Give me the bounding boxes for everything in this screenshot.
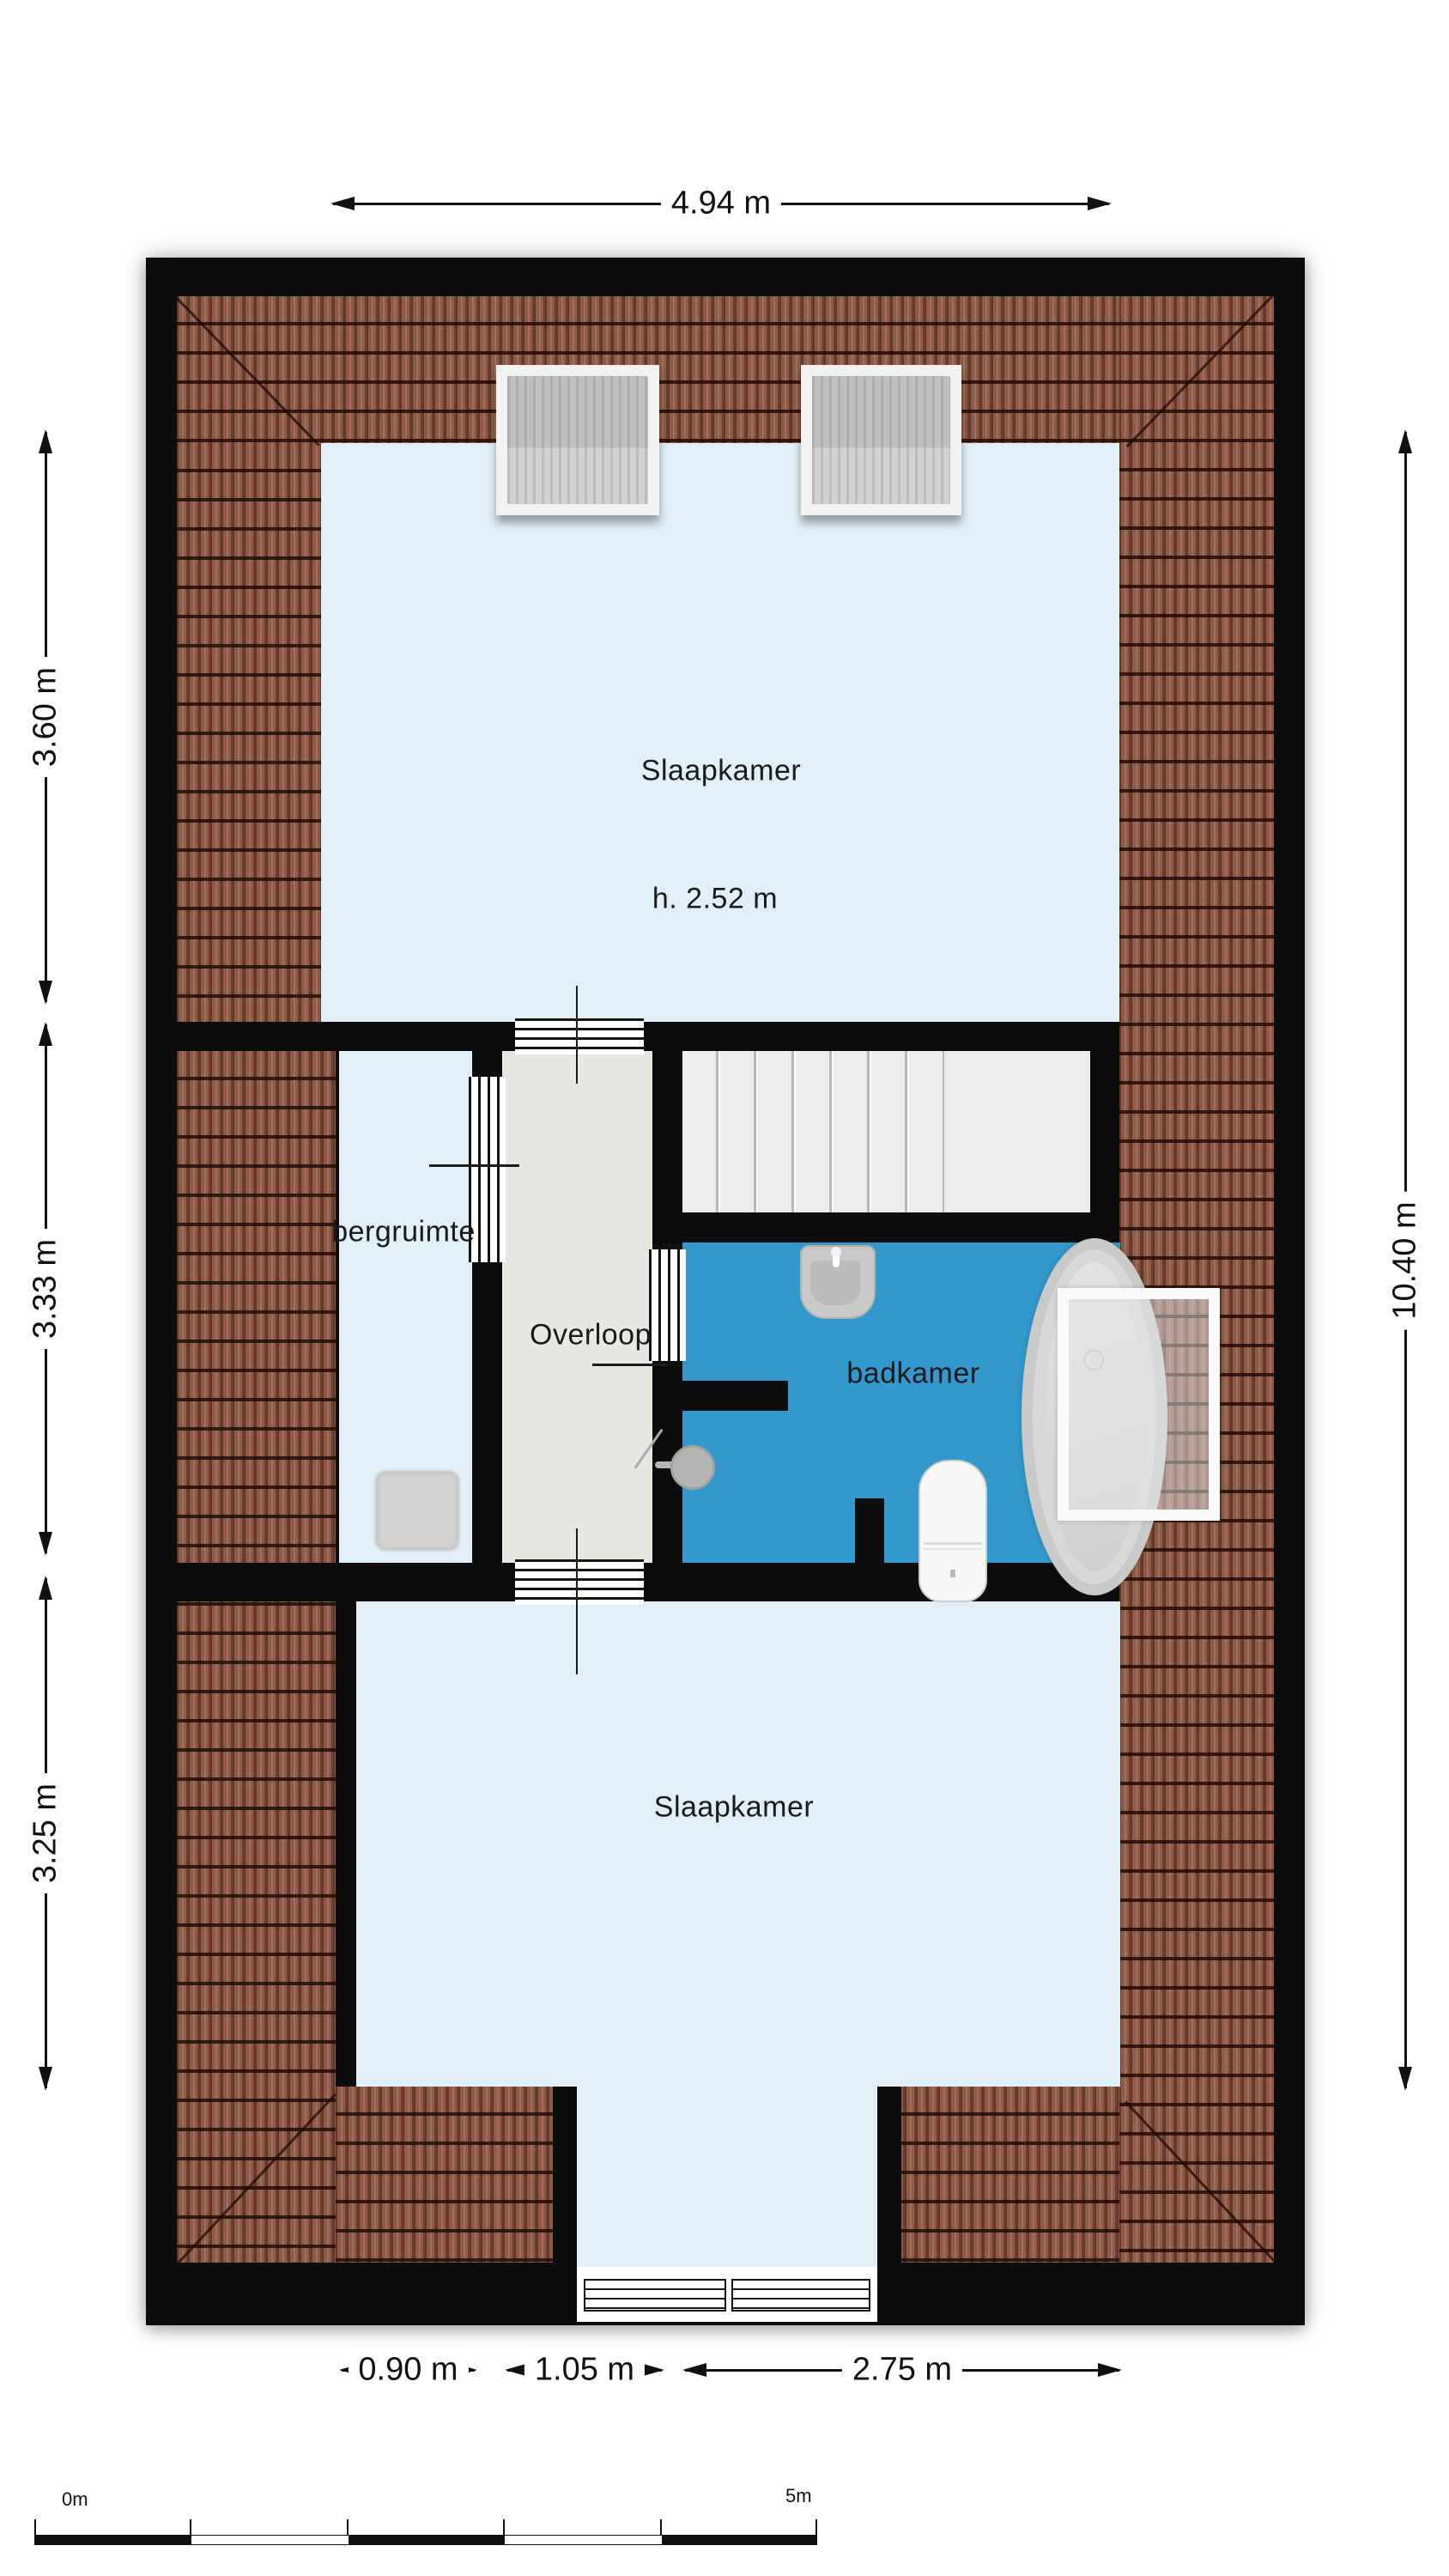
wall-landing-roof [1090,1022,1119,1242]
scale-bar [34,2516,817,2545]
dimension-label: 0.90 m [348,2350,468,2391]
arrowhead-right-icon [1098,2363,1122,2377]
skylight-window [496,365,659,515]
wall-dormer-left [553,2087,577,2322]
label-bedroom-bottom: Slaapkamer [654,1791,814,1825]
arrowhead-up-icon [39,1576,52,1600]
label-landing: Overloop [530,1319,652,1352]
dimension-bottom-3: 2.75 m [682,2363,1122,2377]
dimension-left-3: 3.25 m [39,1576,52,2091]
wall-bedroomtop-middle [177,1022,1119,1051]
scale-segment [349,2536,505,2544]
wall-corridor-stairs-stub [652,1051,682,1077]
dimension-label: 3.33 m [26,1229,66,1349]
dimension-left-1: 3.60 m [39,429,52,1005]
roof-strip-right [1119,296,1274,2263]
toilet-seat-line [924,1542,982,1545]
room-bedroom-top [321,443,1119,1022]
toilet-flush-mark [950,1570,955,1577]
arrowhead-up-icon [39,1022,52,1046]
skylight-glass [507,376,648,504]
dormer-recess [577,2087,877,2267]
dimension-bottom-1: 0.90 m [339,2363,477,2377]
washbasin [800,1245,876,1319]
door-bathroom [649,1249,686,1361]
scale-end-label: 5m [785,2485,812,2507]
door-axis-line [576,986,578,1084]
dimension-left-2: 3.33 m [39,1022,52,1556]
dimension-label: 3.25 m [26,1773,66,1893]
door-tick-line [592,1364,668,1366]
shower-head [670,1445,715,1490]
wall-bathroom-stub-h [682,1381,788,1411]
label-storage: bergruimte [331,1216,476,1249]
arrowhead-down-icon [39,1532,52,1556]
door-tick-line [429,1164,519,1167]
dimension-label: 4.94 m [661,184,781,224]
dimension-top: 4.94 m [330,197,1112,210]
dimension-label: 3.60 m [26,657,66,777]
faucet-icon [831,1247,841,1257]
arrowhead-left-icon [682,2363,706,2377]
wall-bathroom-stub-v [855,1498,884,1599]
scale-segment [662,2536,816,2544]
scale-segment [35,2536,191,2544]
scale-segment [191,2536,349,2544]
door-bedroom-bottom [515,1559,644,1605]
label-ceiling-height: h. 2.52 m [652,883,778,916]
arrowhead-down-icon [39,981,52,1005]
roof-strip-left-upper [177,443,321,1022]
dimension-label: 10.40 m [1385,1191,1426,1329]
dimension-label: 1.05 m [524,2350,645,2391]
arrowhead-left-icon [330,197,355,210]
dimension-label: 2.75 m [842,2350,962,2391]
floorplan: Slaapkamer h. 2.52 m bergruimte Overloop… [146,258,1305,2325]
scale-start-label: 0m [62,2488,88,2511]
glass-screen [1058,1288,1220,1521]
door-axis-line [576,1528,578,1674]
roof-strip-left-lower [177,1022,336,2263]
dimension-right: 10.40 m [1398,429,1412,2091]
arrowhead-down-icon [1398,2067,1412,2091]
label-bedroom-top: Slaapkamer [641,755,801,788]
room-landing-corridor [502,1051,652,1563]
arrowhead-up-icon [1398,429,1412,453]
skylight-glass [812,376,950,504]
wall-stairs-bathroom [670,1212,1119,1242]
dimension-bottom-2: 1.05 m [505,2363,664,2377]
room-bedroom-bottom [356,1601,1120,2087]
toilet [919,1460,987,1602]
dormer-window [584,2279,726,2312]
scale-bar-segments [34,2535,817,2545]
staircase [682,1051,944,1212]
dormer-window [731,2279,870,2312]
skylight-window [801,365,961,515]
label-bathroom: badkamer [846,1358,979,1391]
roof-band-top [177,296,1274,445]
stair-landing [944,1051,1090,1212]
door-bedroom-top [515,1018,644,1054]
scale-segment [505,2536,662,2544]
arrowhead-right-icon [1088,197,1112,210]
arrowhead-up-icon [39,429,52,453]
storage-closet [375,1471,459,1551]
arrowhead-down-icon [39,2067,52,2091]
wall-dormer-right [877,2087,901,2322]
toilet-seat-line [924,1548,982,1550]
